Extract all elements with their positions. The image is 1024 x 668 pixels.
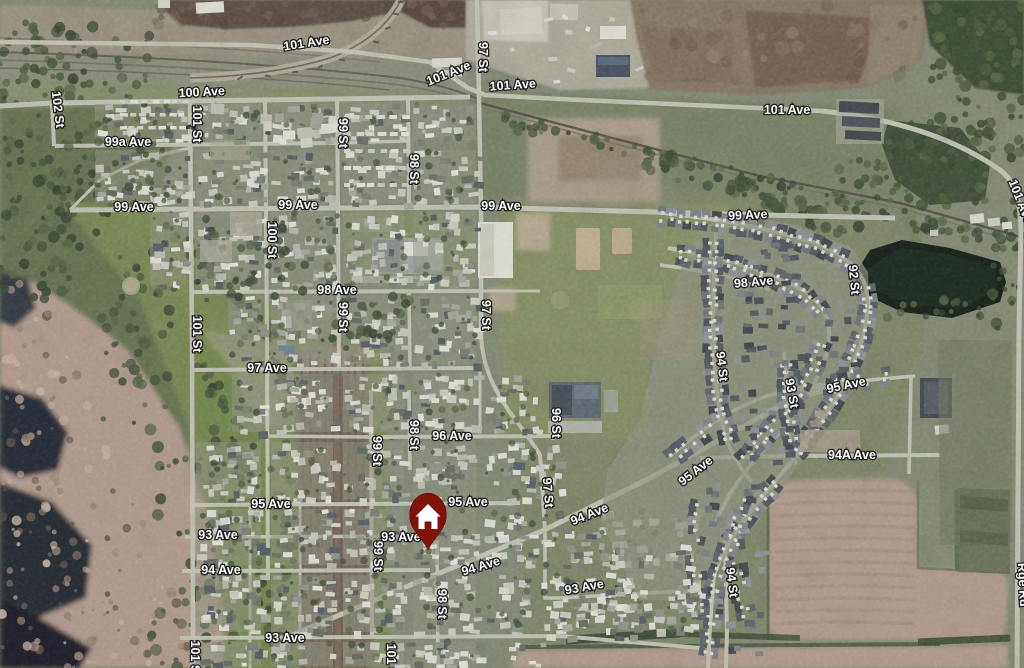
- svg-text:93 Ave: 93 Ave: [381, 530, 420, 544]
- svg-text:94 Ave: 94 Ave: [201, 563, 240, 577]
- svg-text:94A Ave: 94A Ave: [828, 448, 876, 462]
- svg-text:96 Ave: 96 Ave: [432, 429, 471, 443]
- svg-text:98 St: 98 St: [407, 154, 421, 185]
- svg-text:95 Ave: 95 Ave: [251, 497, 290, 511]
- svg-text:100 Ave: 100 Ave: [178, 84, 225, 100]
- svg-text:97 St: 97 St: [476, 42, 490, 73]
- svg-text:99 Ave: 99 Ave: [481, 199, 520, 213]
- svg-text:101 St: 101 St: [384, 644, 398, 668]
- svg-text:99a Ave: 99a Ave: [105, 135, 151, 149]
- svg-text:96 St: 96 St: [549, 408, 563, 439]
- svg-text:101 Ave: 101 Ave: [764, 103, 810, 117]
- svg-text:95 Ave: 95 Ave: [448, 495, 487, 509]
- svg-text:99 St: 99 St: [370, 436, 384, 467]
- svg-text:97 St: 97 St: [479, 300, 493, 331]
- svg-text:101 St: 101 St: [190, 106, 204, 144]
- svg-text:99 St: 99 St: [371, 541, 385, 572]
- svg-text:101 St: 101 St: [190, 316, 204, 354]
- svg-text:99 Ave: 99 Ave: [278, 198, 317, 212]
- svg-text:99 St: 99 St: [336, 302, 350, 333]
- svg-text:98 Ave: 98 Ave: [317, 283, 356, 297]
- svg-text:100 St: 100 St: [265, 222, 279, 260]
- svg-text:98 St: 98 St: [435, 589, 449, 620]
- svg-text:92 St: 92 St: [846, 264, 863, 296]
- svg-text:93 Ave: 93 Ave: [265, 631, 304, 645]
- svg-text:98 St: 98 St: [407, 420, 421, 451]
- svg-text:99 St: 99 St: [336, 118, 350, 149]
- svg-text:99 Ave: 99 Ave: [728, 207, 768, 223]
- svg-text:97 St: 97 St: [540, 477, 557, 509]
- svg-text:97 Ave: 97 Ave: [247, 361, 286, 375]
- svg-text:93 Ave: 93 Ave: [198, 528, 237, 542]
- svg-text:101 St: 101 St: [188, 641, 202, 668]
- svg-text:99 Ave: 99 Ave: [114, 200, 153, 214]
